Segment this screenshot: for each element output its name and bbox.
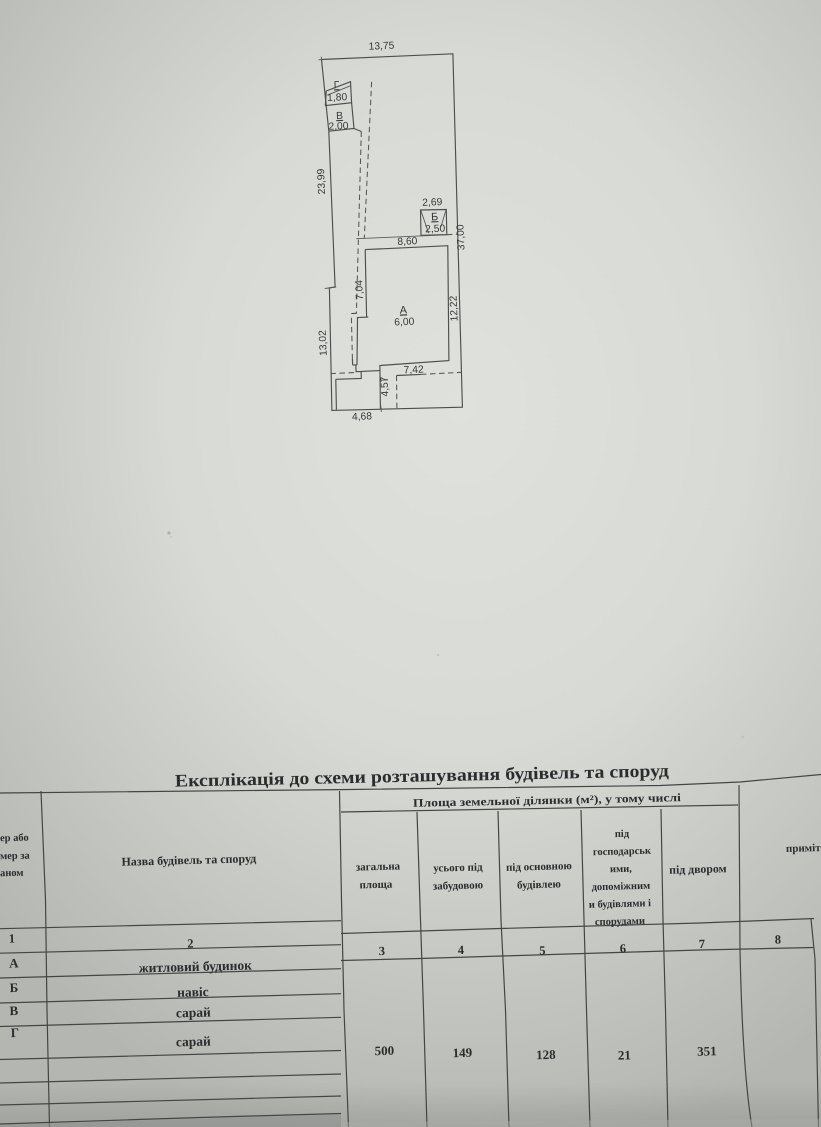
svg-text:7: 7 (699, 937, 706, 951)
svg-text:6: 6 (620, 941, 627, 955)
svg-text:7,42: 7,42 (403, 364, 424, 376)
svg-text:А: А (9, 955, 19, 970)
svg-text:усього під: усього під (433, 861, 483, 874)
svg-text:2,69: 2,69 (422, 197, 443, 209)
svg-text:3: 3 (379, 944, 386, 958)
svg-text:12,22: 12,22 (448, 295, 460, 322)
svg-text:житловий будинок: житловий будинок (139, 958, 253, 976)
svg-text:забудовою: забудовою (433, 879, 484, 892)
svg-text:2,50: 2,50 (425, 223, 446, 235)
svg-text:будівлею: будівлею (517, 878, 561, 891)
svg-text:Г: Г (11, 1025, 20, 1040)
svg-text:Назва будівель та споруд: Назва будівель та споруд (121, 851, 256, 869)
svg-text:13,02: 13,02 (318, 330, 330, 357)
svg-text:Г: Г (333, 80, 339, 91)
svg-text:господарськ: господарськ (593, 846, 652, 859)
svg-text:Б: Б (431, 211, 439, 223)
svg-text:площа: площа (359, 879, 393, 892)
svg-text:351: 351 (697, 1043, 717, 1059)
svg-text:А: А (399, 304, 408, 316)
svg-text:4: 4 (458, 943, 465, 957)
svg-text:примітка: примітка (786, 842, 821, 855)
svg-text:8: 8 (775, 932, 782, 946)
svg-text:4,68: 4,68 (352, 411, 373, 423)
svg-text:128: 128 (536, 1047, 556, 1063)
svg-text:Б: Б (9, 980, 18, 995)
svg-text:ими,: ими, (610, 864, 633, 876)
svg-text:2: 2 (187, 936, 194, 950)
svg-text:спорудами: спорудами (595, 916, 645, 928)
svg-text:під двором: під двором (669, 861, 727, 876)
svg-text:и будівлями і: и будівлями і (589, 898, 652, 911)
svg-text:4,57: 4,57 (379, 376, 391, 397)
svg-text:сарай: сарай (176, 1005, 212, 1021)
svg-text:2,00: 2,00 (328, 121, 349, 133)
svg-text:6,00: 6,00 (394, 317, 415, 329)
svg-text:мер за: мер за (0, 851, 31, 863)
svg-text:21: 21 (618, 1047, 631, 1062)
svg-text:500: 500 (374, 1043, 394, 1059)
svg-text:сарай: сарай (176, 1034, 212, 1050)
svg-text:загальна: загальна (356, 860, 401, 873)
svg-text:7,04: 7,04 (354, 279, 366, 300)
svg-text:навіс: навіс (177, 984, 209, 1000)
svg-text:37,00: 37,00 (455, 224, 467, 251)
svg-text:під: під (615, 829, 630, 840)
svg-text:5: 5 (539, 943, 546, 957)
svg-text:8,60: 8,60 (397, 236, 418, 248)
svg-text:149: 149 (452, 1045, 472, 1061)
svg-text:під основною: під основною (506, 860, 572, 874)
svg-text:23,99: 23,99 (316, 168, 328, 195)
svg-text:аном: аном (0, 868, 24, 879)
svg-text:1: 1 (9, 931, 16, 945)
svg-text:ер або: ер або (0, 833, 29, 845)
svg-text:13,75: 13,75 (368, 41, 395, 53)
svg-text:допоміжним: допоміжним (591, 881, 650, 894)
svg-text:1,80: 1,80 (327, 92, 348, 104)
svg-text:В: В (9, 1003, 18, 1018)
